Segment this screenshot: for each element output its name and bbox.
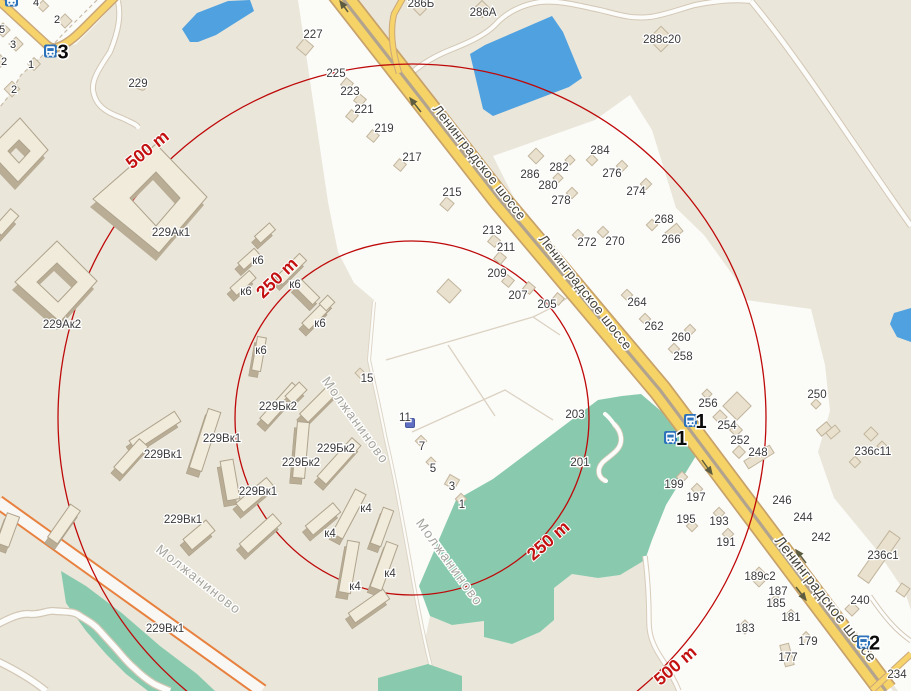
svg-text:1: 1 bbox=[695, 411, 706, 433]
svg-text:201: 201 bbox=[570, 457, 589, 469]
svg-text:284: 284 bbox=[590, 145, 610, 157]
svg-text:266: 266 bbox=[661, 234, 680, 246]
svg-text:223: 223 bbox=[340, 86, 359, 98]
svg-text:256: 256 bbox=[698, 398, 717, 410]
svg-text:к6: к6 bbox=[240, 286, 251, 298]
svg-text:187: 187 bbox=[768, 586, 787, 598]
svg-text:193: 193 bbox=[709, 516, 728, 528]
svg-text:к4: к4 bbox=[349, 581, 361, 593]
svg-text:227: 227 bbox=[303, 29, 322, 41]
svg-text:229Ак1: 229Ак1 bbox=[152, 227, 190, 239]
svg-text:205: 205 bbox=[537, 299, 556, 311]
svg-text:217: 217 bbox=[402, 152, 421, 164]
svg-text:270: 270 bbox=[605, 236, 624, 248]
svg-text:242: 242 bbox=[811, 532, 830, 544]
svg-text:248: 248 bbox=[748, 447, 767, 459]
svg-text:240: 240 bbox=[850, 595, 869, 607]
svg-text:260: 260 bbox=[671, 332, 690, 344]
svg-text:183: 183 bbox=[735, 623, 754, 635]
svg-text:276: 276 bbox=[602, 168, 621, 180]
svg-text:к6: к6 bbox=[255, 345, 266, 357]
svg-text:7: 7 bbox=[419, 441, 425, 453]
svg-text:229Бк2: 229Бк2 bbox=[282, 457, 320, 469]
svg-text:189с2: 189с2 bbox=[744, 571, 775, 583]
svg-text:185: 185 bbox=[766, 598, 785, 610]
svg-text:252: 252 bbox=[730, 435, 749, 447]
svg-text:225: 225 bbox=[326, 68, 345, 80]
svg-text:2: 2 bbox=[1, 56, 7, 68]
svg-text:к4: к4 bbox=[360, 503, 372, 515]
svg-text:179: 179 bbox=[798, 636, 817, 648]
svg-text:229Вк1: 229Вк1 bbox=[203, 433, 241, 445]
svg-text:268: 268 bbox=[654, 214, 673, 226]
svg-text:246: 246 bbox=[772, 495, 791, 507]
svg-text:207: 207 bbox=[508, 290, 527, 302]
svg-text:к4: к4 bbox=[384, 568, 396, 580]
svg-text:234: 234 bbox=[887, 669, 907, 681]
svg-text:286Б: 286Б bbox=[408, 0, 435, 10]
svg-text:203: 203 bbox=[565, 409, 584, 421]
svg-text:1: 1 bbox=[459, 499, 465, 511]
svg-text:258: 258 bbox=[673, 351, 692, 363]
svg-text:3: 3 bbox=[57, 42, 68, 64]
svg-text:278: 278 bbox=[551, 195, 570, 207]
svg-text:15: 15 bbox=[361, 373, 374, 385]
svg-text:254: 254 bbox=[717, 420, 737, 432]
svg-text:2: 2 bbox=[54, 14, 60, 26]
svg-text:181: 181 bbox=[781, 612, 800, 624]
svg-text:250: 250 bbox=[807, 389, 826, 401]
svg-text:к4: к4 bbox=[324, 528, 336, 540]
svg-text:209: 209 bbox=[487, 268, 506, 280]
svg-text:2: 2 bbox=[11, 84, 17, 96]
svg-text:274: 274 bbox=[626, 186, 646, 198]
svg-text:229Вк1: 229Вк1 bbox=[164, 514, 202, 526]
svg-text:282: 282 bbox=[549, 162, 568, 174]
svg-text:11: 11 bbox=[399, 412, 411, 424]
svg-text:229Ак2: 229Ак2 bbox=[43, 319, 81, 331]
svg-text:229Вк1: 229Вк1 bbox=[146, 623, 184, 635]
svg-text:5: 5 bbox=[0, 24, 5, 36]
svg-text:229: 229 bbox=[128, 78, 147, 90]
svg-text:3: 3 bbox=[449, 481, 455, 493]
svg-text:к6: к6 bbox=[289, 279, 300, 291]
svg-text:229Вк1: 229Вк1 bbox=[239, 486, 277, 498]
svg-text:244: 244 bbox=[793, 512, 813, 524]
svg-text:229Бк2: 229Бк2 bbox=[317, 443, 355, 455]
svg-text:229Бк2: 229Бк2 bbox=[259, 401, 297, 413]
svg-text:177: 177 bbox=[778, 652, 797, 664]
svg-text:286А: 286А bbox=[470, 7, 497, 19]
svg-text:219: 219 bbox=[374, 123, 393, 135]
svg-text:221: 221 bbox=[354, 104, 373, 116]
svg-text:5: 5 bbox=[430, 463, 436, 475]
svg-text:к6: к6 bbox=[252, 255, 263, 267]
svg-text:215: 215 bbox=[442, 187, 461, 199]
svg-text:264: 264 bbox=[627, 297, 647, 309]
svg-text:199: 199 bbox=[664, 479, 683, 491]
svg-text:1: 1 bbox=[676, 428, 687, 450]
svg-text:197: 197 bbox=[686, 492, 705, 504]
svg-text:195: 195 bbox=[676, 514, 695, 526]
svg-text:286: 286 bbox=[520, 169, 539, 181]
svg-text:2: 2 bbox=[869, 633, 880, 655]
svg-text:272: 272 bbox=[577, 237, 596, 249]
svg-text:191: 191 bbox=[716, 537, 735, 549]
svg-text:211: 211 bbox=[497, 242, 515, 254]
svg-text:236с1: 236с1 bbox=[867, 550, 898, 562]
svg-text:229Вк1: 229Вк1 bbox=[144, 449, 182, 461]
svg-text:213: 213 bbox=[482, 225, 501, 237]
svg-text:262: 262 bbox=[644, 321, 663, 333]
svg-text:4: 4 bbox=[33, 0, 39, 9]
svg-text:3: 3 bbox=[10, 39, 16, 51]
svg-text:288с20: 288с20 bbox=[643, 34, 681, 46]
svg-text:к6: к6 bbox=[314, 318, 325, 330]
svg-text:1: 1 bbox=[28, 59, 34, 71]
svg-text:236с11: 236с11 bbox=[855, 446, 892, 458]
svg-text:280: 280 bbox=[538, 180, 557, 192]
